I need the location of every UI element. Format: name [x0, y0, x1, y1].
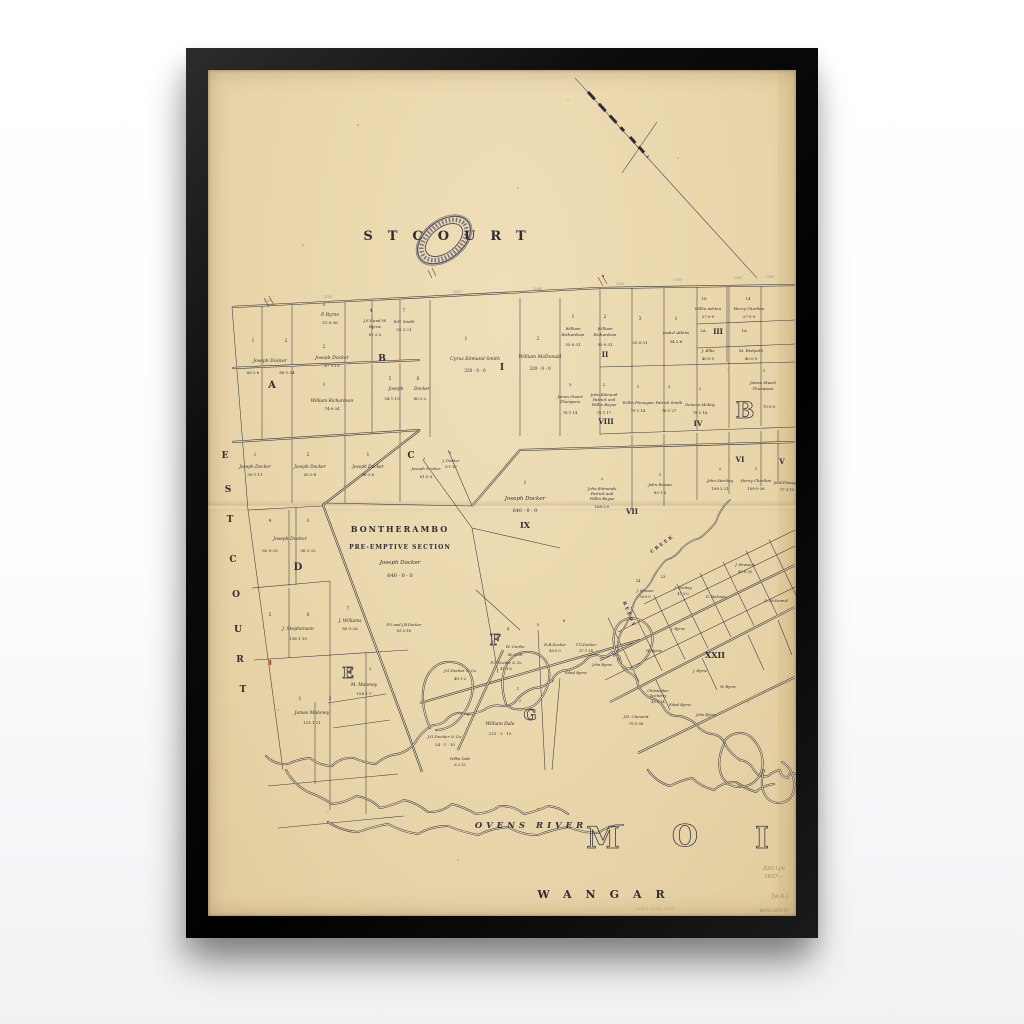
- road-center: [232, 285, 795, 307]
- map-label: 320 · 0 · 0: [529, 366, 551, 371]
- parcel-boundary: [748, 635, 764, 670]
- county-name-letters: M O I: [586, 819, 769, 856]
- map-label: 1: [675, 316, 678, 321]
- pencil-note-5: NTS: [774, 915, 783, 916]
- map-label: Willm Bayne: [592, 402, 617, 407]
- preemptive-section-label: BONTHERAMBO PRE-EMPTIVE SECTION Joseph D…: [349, 524, 451, 579]
- map-label: 35·0·31: [565, 342, 580, 347]
- parcel-grid-lines: [232, 285, 796, 828]
- map-label: G: [524, 706, 537, 724]
- map-label: 70·0·0: [763, 404, 776, 409]
- map-label: 6: [563, 618, 566, 623]
- foxing-spots: [277, 99, 749, 861]
- map-label: Joseph Docker: [410, 466, 441, 471]
- map-label: John Byrne: [695, 713, 716, 717]
- map-label: 83·1·6: [654, 490, 667, 495]
- map-label: VI: [735, 455, 745, 464]
- map-label: William Dale: [485, 721, 514, 727]
- reedy-creek-label: REEDY CREEK: [621, 534, 676, 629]
- parcel-boundary: [600, 427, 795, 434]
- map-label: Isabel Atkins: [662, 330, 689, 335]
- county-letter-i: I: [755, 821, 769, 856]
- parcel-boundary: [476, 590, 520, 630]
- map-label: 1: [299, 696, 302, 701]
- map-label: 23: [661, 575, 666, 579]
- accession-number: 10922 1105 1431: [635, 907, 674, 911]
- preemptive-subtitle: PRE-EMPTIVE SECTION: [349, 544, 451, 551]
- map-label: William Richardson: [311, 399, 354, 404]
- map-label: W.F. Smith: [393, 319, 415, 324]
- map-label: 1: [252, 338, 255, 343]
- map-label: J.D. Clement: [622, 714, 649, 719]
- map-label: J. Williams: [338, 619, 363, 624]
- map-label: Edwd Byrne: [668, 703, 691, 707]
- map-label: J. Byrne: [670, 627, 685, 631]
- left-margin-letter: S: [225, 485, 232, 495]
- map-label: 2: [719, 466, 722, 471]
- map-label: 18: [701, 296, 707, 301]
- map-label: 5: [269, 612, 272, 617]
- map-label: William: [597, 326, 613, 331]
- map-label: 4: [370, 308, 373, 313]
- map-label: J. Brassey: [734, 562, 756, 567]
- pencil-note-1: 820 Lyll: [763, 866, 785, 872]
- map-label: 54 · 1 · 10: [435, 742, 455, 747]
- map-label: 61·0·3: [420, 474, 433, 479]
- parcel-boundary: [423, 460, 498, 673]
- map-label: 40·0·0: [745, 356, 758, 361]
- left-margin-letter: U: [234, 625, 242, 635]
- preemptive-owner: Joseph Docker: [379, 560, 421, 566]
- map-label: J.S.P.and W.: [362, 318, 386, 323]
- map-label: Christopher: [647, 689, 669, 693]
- map-label: 3: [323, 302, 326, 307]
- map-label: 8·1·16: [445, 465, 457, 469]
- parcel-boundary: [746, 551, 777, 615]
- map-label: 85·3·26: [342, 626, 358, 631]
- left-margin-letter: C: [229, 555, 236, 565]
- map-label: F: [490, 631, 501, 649]
- map-label: 1: [467, 712, 469, 717]
- map-label: 41·3·8: [500, 667, 512, 671]
- parcel-boundary: [278, 816, 404, 828]
- cadastral-map: STCOURT ESTCOURT BONTHERAMBO PRE-EMPTIVE…: [208, 70, 796, 916]
- map-label: T.G.Docker: [576, 643, 597, 647]
- map-label: D. Maloney: [705, 595, 727, 599]
- map-label: 3150: [616, 282, 625, 286]
- map-label: 2: [323, 344, 326, 349]
- map-label: 27·0·0: [743, 314, 756, 319]
- creek-word-1: REEDY: [621, 601, 637, 629]
- map-label: VIII: [597, 417, 613, 426]
- map-label: 2: [423, 456, 426, 461]
- map-label: 88·1·34: [279, 370, 295, 375]
- map-label: 1: [524, 481, 527, 486]
- map-label: Thompson: [560, 399, 581, 404]
- map-label: 40·0·0: [702, 356, 715, 361]
- map-label: 3: [449, 450, 452, 455]
- left-margin-letter: E: [222, 451, 229, 461]
- map-label: 79·3·36: [629, 721, 644, 726]
- map-label: 1150: [674, 278, 683, 282]
- map-label: 30·0·0: [639, 595, 650, 599]
- map-label: 37·1·14: [579, 649, 593, 653]
- map-label: 2: [329, 696, 332, 701]
- map-label: Joseph: [388, 387, 404, 392]
- map-label: A: [267, 380, 276, 391]
- map-label: William McDonald: [519, 354, 562, 360]
- map-label: 43·0·35: [738, 570, 753, 574]
- map-label: Richardson: [592, 332, 616, 337]
- map-label: JnoF.Flanagan: [773, 481, 796, 485]
- pencil-note-2: 1637—: [764, 874, 784, 880]
- road-center: [610, 607, 795, 702]
- map-label: 80·2·2: [414, 396, 427, 401]
- parcel-boundary: [552, 678, 560, 770]
- map-label: 2: [307, 452, 310, 457]
- map-label: 36·3·8: [362, 472, 375, 477]
- map-label: E: [342, 664, 353, 682]
- map-label: James Stuart: [749, 380, 777, 385]
- map-label: Byrne: [368, 324, 382, 329]
- map-label: Henry Charlton: [733, 306, 765, 311]
- map-label: 2: [603, 382, 606, 387]
- map-label: 1: [323, 382, 326, 387]
- map-label: 2150: [264, 299, 273, 303]
- map-label: William: [565, 326, 581, 331]
- map-label: 77·3·15: [780, 488, 795, 492]
- map-label: 2: [552, 678, 555, 683]
- map-label: James Maloney: [294, 710, 330, 716]
- map-label: Thompson: [752, 386, 773, 391]
- map-label: 4: [507, 626, 510, 631]
- map-label: 1: [465, 336, 468, 341]
- map-label: 34·2·6: [670, 339, 683, 344]
- map-label: W. Curtis: [506, 644, 525, 649]
- map-label: 3: [369, 666, 372, 671]
- map-label: VII: [625, 507, 638, 516]
- road: [323, 430, 422, 772]
- map-label: 3150: [324, 295, 333, 299]
- map-label: H.B.Docker: [543, 643, 566, 647]
- map-label: 7: [403, 308, 406, 313]
- map-label: Henry Charlton: [740, 478, 772, 483]
- ovens-river-label: OVENS RIVER: [475, 821, 587, 831]
- map-label: 24: [636, 579, 641, 583]
- parcel-boundary: [700, 573, 731, 637]
- county-letter-m: M: [586, 821, 619, 856]
- preemptive-acreage: 640 · 0 · 0: [387, 573, 412, 579]
- map-label: 87·3·15: [324, 363, 340, 368]
- parcel-boundary: [600, 362, 795, 367]
- gallery-wall: STCOURT ESTCOURT BONTHERAMBO PRE-EMPTIVE…: [0, 0, 1024, 1024]
- map-label: W. Byrne: [720, 685, 736, 689]
- map-label: John Rowan: [647, 482, 672, 487]
- road-center: [323, 430, 422, 772]
- map-label: 6: [417, 376, 420, 381]
- map-label: J. Docker: [442, 459, 460, 463]
- map-label: 47·3·0: [677, 592, 688, 596]
- map-label: III: [713, 327, 723, 336]
- map-label: J. Stephenson: [281, 626, 314, 632]
- preemptive-title: BONTHERAMBO: [351, 524, 449, 534]
- map-label: 2A: [700, 328, 705, 333]
- map-label: I: [500, 363, 504, 373]
- map-label: Joseph Docker: [351, 465, 385, 470]
- county-letter-o: O: [672, 819, 698, 854]
- map-label: 3: [569, 382, 572, 387]
- map-label: 76·1·27: [662, 408, 677, 413]
- map-label: 2300: [734, 276, 743, 280]
- picture-frame: STCOURT ESTCOURT BONTHERAMBO PRE-EMPTIVE…: [186, 48, 818, 938]
- map-label: Willm Ashton: [695, 306, 722, 311]
- map-label: 1: [254, 452, 257, 457]
- map-label: 2: [604, 314, 607, 319]
- map-label: 4046: [534, 287, 543, 291]
- map-label: 2: [519, 698, 522, 703]
- map-label: 1: [637, 384, 640, 389]
- map-label: 1A: [741, 328, 746, 333]
- parcel-boundary: [254, 650, 408, 660]
- map-label: 320 · 0 · 0: [464, 368, 486, 373]
- map-label: 1: [367, 452, 370, 457]
- map-label: 7: [347, 606, 350, 611]
- map-label: 1: [572, 314, 575, 319]
- map-label: 35·0·31: [632, 340, 647, 345]
- map-label: Patrick Smith: [655, 400, 683, 405]
- map-label: P. Byrne: [320, 313, 339, 318]
- map-label: F.G.Docker & Co: [489, 661, 522, 665]
- pencil-note-3: [w.A.]: [771, 893, 789, 900]
- map-label: 5: [537, 622, 540, 627]
- parcel-boundary: [333, 720, 390, 728]
- wangaratta-label: WANGAR: [536, 888, 678, 901]
- map-label: M. Redpath: [738, 348, 764, 353]
- map-label: 4: [269, 518, 272, 523]
- road-center: [232, 430, 420, 442]
- pencil-note-4: WANGARATTA: [759, 908, 788, 913]
- map-label: 6: [307, 612, 310, 617]
- map-label: J.G.Docker & Co: [443, 668, 477, 673]
- parcel-labels: 2150315040514046315011502300130012Joseph…: [238, 275, 796, 767]
- map-label: 81·2·2: [369, 332, 382, 337]
- map-label: 82·0·33: [262, 548, 278, 553]
- map-label: 1300: [766, 275, 775, 279]
- parcel-boundary: [252, 581, 330, 588]
- map-label: John Sterling: [706, 478, 734, 483]
- map-label: IV: [694, 419, 703, 428]
- left-margin-letter: T: [227, 515, 234, 525]
- parcel-boundary: [268, 774, 398, 786]
- map-label: 2: [699, 386, 702, 391]
- map-label: 89·2·6: [247, 370, 260, 375]
- map-label: 83·2·16: [397, 629, 412, 633]
- parcel-boundary: [631, 607, 662, 671]
- map-label: 1: [659, 472, 662, 477]
- map-label: Joseph Docker: [272, 536, 308, 542]
- map-label: F.G.and J.B.Docker: [386, 623, 422, 627]
- map-label: Cyrus Edmund Smith: [450, 356, 500, 362]
- parish-name-estcourt: STCOURT: [363, 229, 540, 244]
- map-label: 5: [389, 376, 392, 381]
- map-label: D: [294, 562, 303, 573]
- map-label: 74·0·34: [324, 406, 340, 411]
- map-label: 1: [755, 466, 758, 471]
- creek-word-2: CREEK: [649, 534, 675, 555]
- map-label: 2: [537, 336, 540, 341]
- map-label: 3: [307, 518, 310, 523]
- map-label: 40·3·28: [508, 652, 523, 657]
- map-label: Joseph Docker: [252, 358, 288, 364]
- map-label: 79·1·14: [631, 408, 646, 413]
- map-label: D. McDermid: [763, 599, 788, 603]
- map-label: 640 · 0 · 0: [513, 508, 537, 514]
- map-label: 213 · 3 · 10: [489, 731, 512, 736]
- map-label: Willm Bayne: [590, 496, 615, 501]
- map-label: Docherty: [649, 694, 668, 698]
- survey-line: [575, 78, 757, 278]
- road: [232, 285, 795, 307]
- map-label: 1: [763, 368, 766, 373]
- map-label: 2: [601, 476, 604, 481]
- map-label: B: [736, 398, 755, 424]
- map-label: Joseph Docker: [504, 496, 546, 502]
- map-label: 48·1·2: [454, 676, 467, 681]
- map-label: C: [407, 451, 414, 461]
- left-margin-letter: O: [232, 590, 240, 600]
- map-label: 138·1·10: [289, 636, 307, 641]
- map-label: 108·1·7: [356, 691, 372, 696]
- map-label: 50·3·8: [304, 472, 317, 477]
- map-label: 4051: [454, 290, 463, 294]
- map-label: XXII: [705, 650, 725, 660]
- map-label: Joseph Docker: [314, 355, 350, 361]
- map-label: Joseph Docker: [238, 465, 272, 470]
- map-label: 3: [668, 384, 671, 389]
- map-label: 27·0·0: [702, 314, 715, 319]
- map-label: 131·1·21: [303, 720, 321, 725]
- map-label: 1: [517, 686, 519, 691]
- river-channel: [286, 770, 568, 814]
- map-label: B: [378, 354, 386, 364]
- map-label: J. Byrne: [692, 669, 707, 673]
- left-margin-letter: R: [236, 655, 244, 665]
- map-label: John Byrne: [591, 663, 612, 667]
- map-label: V: [778, 457, 785, 466]
- map-label: Willm Dale: [450, 757, 471, 761]
- map-label: 78·2·16: [693, 410, 708, 415]
- map-label: 36·2·32: [300, 548, 316, 553]
- map-label: II: [602, 350, 609, 359]
- map-label: 54·1·15: [384, 396, 400, 401]
- map-label: Willm Finnegan: [622, 400, 654, 405]
- map-label: 168·2·0: [595, 504, 610, 509]
- map-label: Edwd Byrne: [564, 671, 587, 675]
- map-label: J. Ellis: [701, 348, 715, 353]
- map-label: 40·0·0: [549, 649, 561, 653]
- map-label: Joseph Docker: [293, 465, 327, 470]
- map-sheet: STCOURT ESTCOURT BONTHERAMBO PRE-EMPTIVE…: [208, 70, 796, 916]
- map-label: 2: [285, 338, 288, 343]
- map-label: Duncan McKay: [684, 402, 716, 407]
- map-label: 52·3·21: [396, 327, 411, 332]
- left-margin-letter: T: [240, 685, 247, 695]
- map-label: J. Simson: [635, 589, 654, 593]
- map-label: 108·0·36: [747, 486, 765, 491]
- map-label: 35·0·31: [597, 342, 612, 347]
- map-label: IX: [520, 520, 531, 530]
- map-label: 14: [745, 296, 751, 301]
- river-channel-fill: [286, 770, 568, 814]
- map-label: W. Byrne: [646, 649, 662, 653]
- map-label: 39·1·11: [247, 472, 262, 477]
- map-label: J.G.Docker & Co.: [426, 734, 462, 739]
- left-margin-parish-letters: ESTCOURT: [222, 451, 247, 695]
- map-label: 51·0·36: [322, 320, 338, 325]
- parcel-boundary: [472, 528, 560, 548]
- road-tick-marks: [264, 268, 607, 307]
- map-label: M. Maloney: [350, 683, 378, 688]
- map-label: J. Stirling: [673, 586, 692, 590]
- map-label: Docker: [413, 387, 431, 392]
- map-label: 3: [639, 316, 642, 321]
- map-label: 108·2·31: [711, 486, 728, 491]
- map-label: 75·1·17: [597, 410, 612, 415]
- parcel-boundary: [702, 658, 717, 690]
- map-label: Richardson: [560, 332, 584, 337]
- map-label: 6·2·13: [454, 763, 465, 767]
- map-label: 78·1·14: [563, 410, 578, 415]
- map-label: 43·0·34: [651, 700, 665, 704]
